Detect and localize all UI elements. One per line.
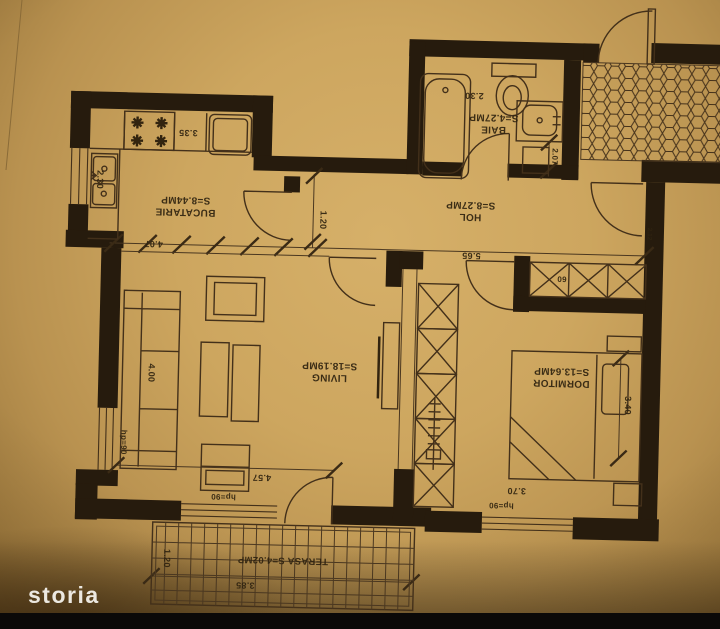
bedroom-area: S=13.64MP: [534, 365, 589, 378]
dim-living-window-side: hp=90: [119, 430, 129, 455]
bedroom-name: DORMITOR: [533, 376, 590, 389]
dim-bedroom-width: 3.70: [507, 485, 526, 496]
dim-kitchen-width: 3.35: [179, 127, 198, 138]
dim-hall-closet: 60: [557, 274, 567, 283]
dim-hall-width: 1.20: [318, 211, 329, 230]
hall-name: HOL: [459, 210, 481, 222]
dim-living-sofa: 4.00: [146, 363, 157, 382]
living-name: LIVING: [312, 371, 347, 383]
dim-kitchen-opening: 4.07: [144, 239, 163, 250]
dim-bedroom-depth: 3.40: [622, 396, 633, 415]
dim-bath-depth: 2.07: [550, 148, 560, 165]
kitchen-name: BUCATARIE: [155, 205, 215, 218]
dim-bath-width: 2.30: [465, 90, 484, 101]
storia-watermark-logo: storia: [28, 582, 100, 609]
room-label-bedroom: DORMITOR S=13.64MP: [533, 365, 590, 389]
dim-entry: 2.12: [645, 228, 653, 241]
living-area: S=18.19MP: [302, 359, 357, 372]
dim-bedroom-window: hp=90: [489, 501, 514, 511]
dim-hall-length: 5.65: [462, 250, 481, 261]
dim-terrace-depth: 1.20: [161, 549, 172, 568]
room-label-hall: HOL S=8.27MP: [445, 199, 495, 223]
bath-area: S=4.27MP: [469, 111, 519, 124]
room-label-kitchen: BUCATARIE S=8.44MP: [155, 193, 216, 217]
dim-living-window-front: hp=90: [211, 492, 236, 502]
photo-bottom-band: [0, 613, 720, 629]
hall-area: S=8.27MP: [446, 199, 496, 212]
floorplan-photo: BUCATARIE S=8.44MP HOL S=8.27MP BAIE S=4…: [0, 0, 720, 629]
plan-labels: BUCATARIE S=8.44MP HOL S=8.27MP BAIE S=4…: [0, 0, 720, 629]
bath-name: BAIE: [481, 123, 506, 135]
dim-kitchen-depth: 2.30: [95, 170, 106, 189]
room-label-terrace: TERASA S=4.02MP: [238, 553, 329, 566]
room-label-bath: BAIE S=4.27MP: [469, 111, 519, 135]
dim-living-length: 4.57: [252, 472, 271, 483]
room-label-living: LIVING S=18.19MP: [302, 359, 358, 383]
kitchen-area: S=8.44MP: [161, 194, 211, 207]
dim-terrace-width: 3.85: [236, 580, 255, 591]
